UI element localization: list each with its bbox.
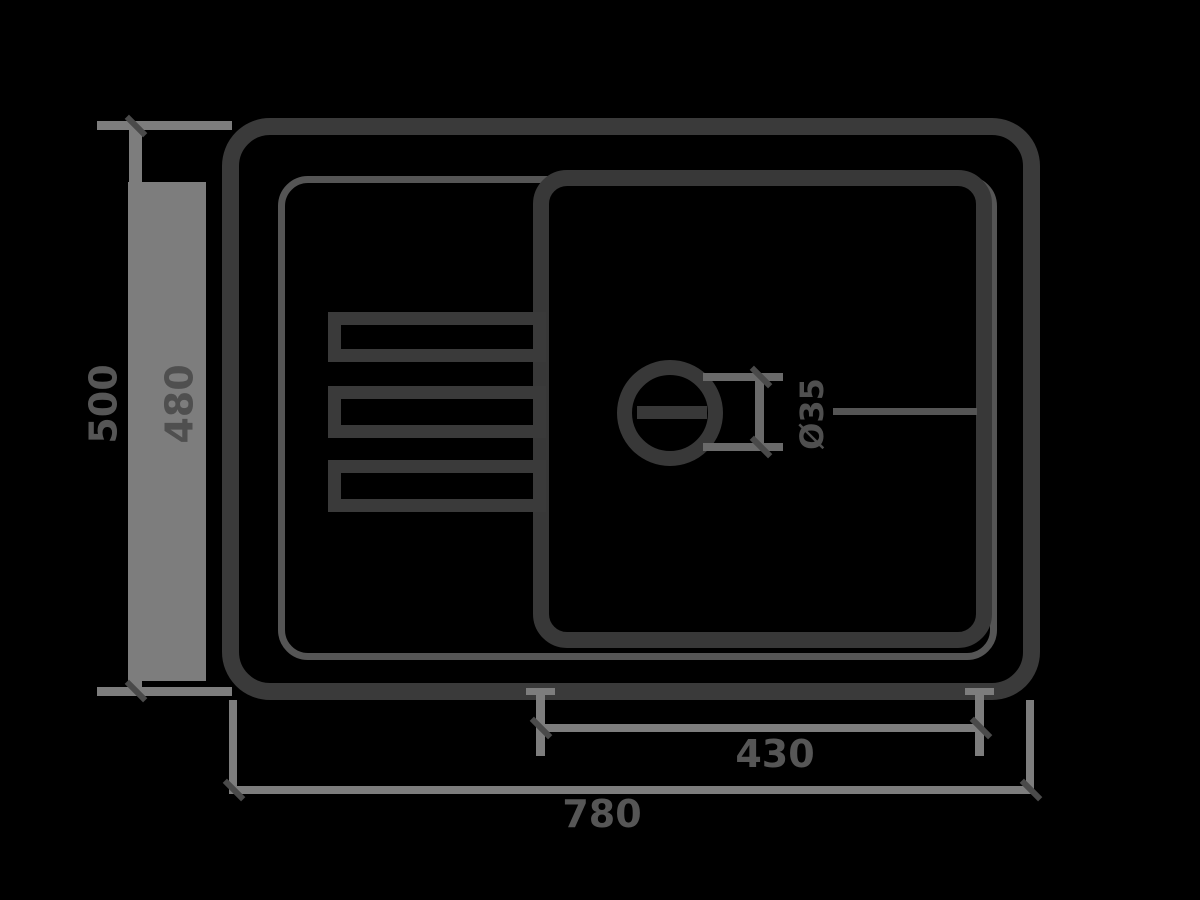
basin-width-label: 430: [725, 733, 825, 775]
overall-width-label: 780: [552, 792, 652, 836]
drain-extension-line-top: [703, 373, 783, 381]
overall-depth-label: 500: [80, 354, 128, 454]
cutout-depth-label: 480: [156, 354, 204, 454]
drain-diameter-label: Ø35: [780, 368, 844, 460]
drainboard-groove: [328, 386, 546, 438]
drainboard-groove: [328, 460, 546, 512]
left-extension-line-top: [97, 121, 232, 130]
sink-dimension-diagram: Ø35 500 480 430 780: [0, 0, 1200, 900]
drainboard-groove: [328, 312, 546, 362]
drain-leader-line: [833, 408, 977, 415]
left-extension-line-bottom: [97, 687, 232, 696]
left-dimension-line: [129, 121, 142, 696]
overall-extension-line-right: [1026, 700, 1034, 790]
basin-dimension-line: [540, 724, 980, 732]
drain-hole-crossbar: [637, 406, 707, 419]
drain-extension-line-bottom: [703, 443, 783, 451]
overall-extension-line-left: [229, 700, 237, 790]
